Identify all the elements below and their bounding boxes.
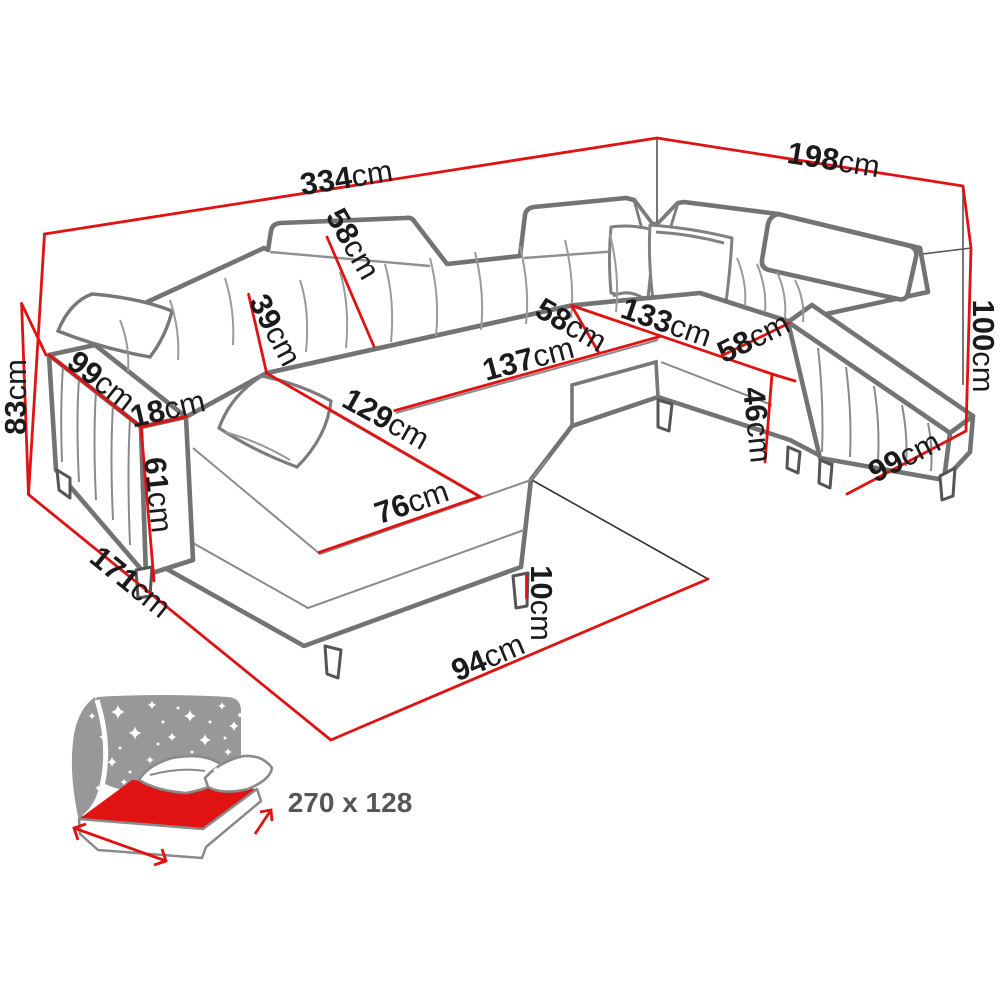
svg-text:94cm: 94cm: [446, 626, 529, 688]
svg-text:334cm: 334cm: [298, 153, 395, 202]
svg-text:10cm: 10cm: [524, 565, 559, 641]
svg-text:100cm: 100cm: [966, 299, 1000, 392]
svg-text:46cm: 46cm: [736, 385, 779, 464]
svg-text:198cm: 198cm: [785, 135, 882, 184]
svg-text:83cm: 83cm: [0, 359, 33, 435]
svg-text:270 x 128: 270 x 128: [288, 787, 413, 818]
